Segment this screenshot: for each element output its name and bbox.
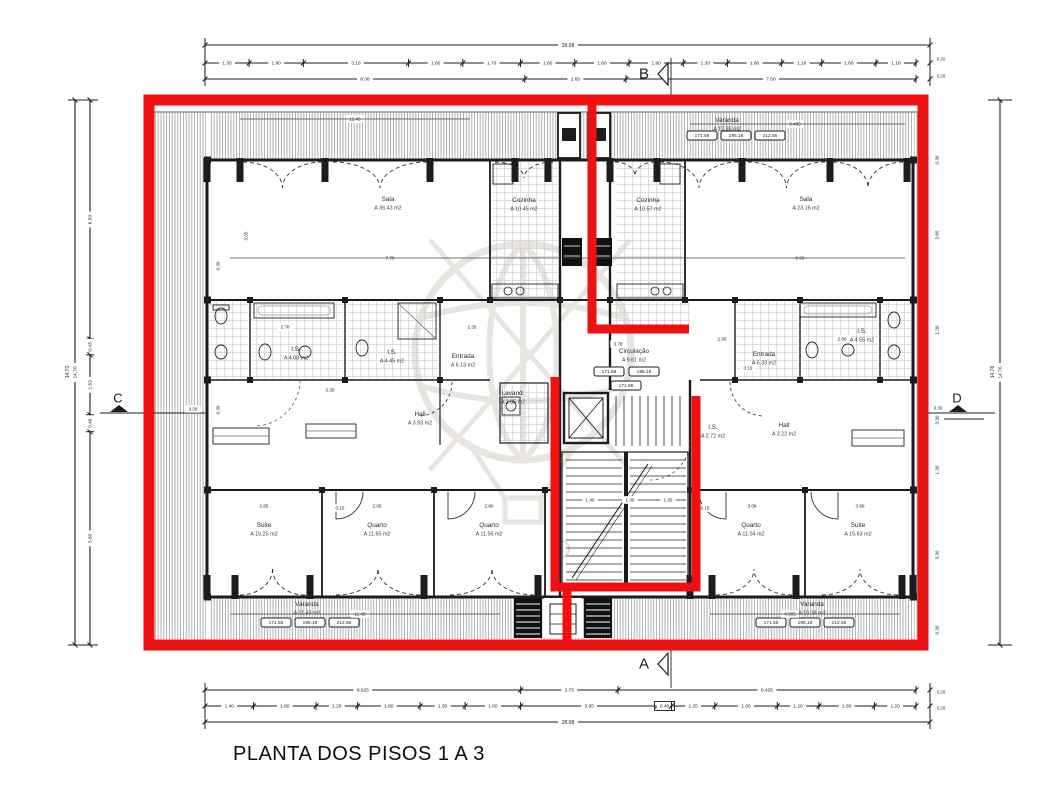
plan-shape — [545, 158, 552, 182]
plan-shape — [607, 158, 614, 182]
plan-shape — [910, 487, 917, 494]
interior-dim: 0.30 — [216, 405, 221, 414]
plan-shape — [910, 377, 917, 384]
room-area: A 10.57 m2 — [634, 206, 661, 212]
plan-shape — [904, 158, 911, 182]
plan-shape — [882, 302, 911, 378]
room-name: I.S. — [708, 424, 718, 431]
room-name: Quarto — [741, 522, 761, 529]
room-name: Varanda — [715, 117, 739, 124]
interior-dim: 0.15 — [701, 506, 710, 511]
plan-shape — [699, 162, 738, 188]
plan-shape — [739, 158, 746, 182]
plan-shape — [730, 382, 764, 416]
room-area: A 10.18 m2 — [798, 610, 825, 616]
room-area: A 9.61 m2 — [622, 357, 646, 363]
interior-dim: 2.35 — [468, 325, 477, 330]
room-area: A 10.45 m2 — [510, 206, 537, 212]
dim-value: 1.70 — [487, 61, 497, 67]
plan-shape — [562, 238, 582, 266]
dim-value: 1.80 — [280, 704, 290, 710]
plan-shape — [732, 297, 738, 303]
interior-dim: 3.30 — [326, 388, 335, 393]
room-area: A 2.72 m2 — [701, 433, 725, 439]
plan-shape — [612, 302, 690, 328]
dim-value: 5.80 — [88, 533, 94, 543]
room-name: Hall — [778, 422, 789, 429]
dim-value: 8.925 — [357, 688, 369, 694]
interior-dim: 1.30 — [626, 498, 635, 503]
wall-dim: 3.30 — [935, 550, 940, 559]
dim-value: 1.60 — [844, 61, 854, 67]
dim-value: 6.50 — [88, 215, 94, 225]
dim-value: 1.20 — [891, 704, 901, 710]
dimension-text: 0.30 — [934, 406, 943, 411]
plan-shape — [535, 575, 542, 599]
level-tag: 212.56 — [337, 620, 352, 626]
plan-shape — [204, 377, 211, 384]
window-arcs — [240, 162, 903, 595]
dimension-text: 0.20 — [937, 74, 946, 79]
plan-shape — [754, 569, 792, 595]
dim-value: 1.60 — [272, 61, 282, 67]
dim-value: 1.30 — [701, 61, 711, 67]
dim-value: 3.95 — [584, 704, 594, 710]
section-marker-C: C — [113, 391, 122, 406]
room-area: A 11.43 m2 — [294, 610, 321, 616]
plan-shape — [802, 487, 808, 493]
plan-shape — [204, 487, 211, 494]
room-area: A 2.35 m2 — [501, 399, 525, 405]
plan-shape — [342, 377, 348, 383]
plan-shape — [716, 569, 754, 595]
room-name: Circulação — [619, 348, 650, 355]
interior-dim: 1.40 — [586, 498, 595, 503]
section-arrow-icon — [110, 405, 128, 412]
plan-shape — [787, 162, 826, 188]
dim-value: 1.60 — [651, 61, 661, 67]
wall-dim: 3.65 — [935, 230, 940, 239]
plan-shape — [822, 569, 860, 595]
plan-shape — [232, 575, 239, 599]
plan-shape — [319, 487, 325, 493]
plan-shape — [562, 128, 576, 141]
interior-dim: 2.85 — [260, 504, 269, 509]
interior-dim: 3.80 — [856, 504, 865, 509]
level-tag: 212.56 — [763, 133, 778, 139]
plan-shape — [797, 297, 803, 303]
interior-dim: 0.30 — [216, 261, 221, 270]
dim-value: 1.60 — [543, 61, 553, 67]
plan-shape — [243, 162, 283, 188]
floor-plan-page: ®SalaA 36.43 m2CozinhaA 10.45 m2CozinhaA… — [0, 0, 1062, 800]
plan-shape — [748, 162, 787, 188]
plan-shape — [797, 377, 803, 383]
plan-shape — [378, 569, 420, 595]
interior-dim: 2.95 — [373, 504, 382, 509]
dim-value: 1.80 — [384, 704, 394, 710]
plan-shape — [431, 487, 437, 493]
section-marker-D: D — [952, 391, 961, 406]
dim-value: 1.30 — [438, 704, 448, 710]
room-area: A 11.56 m2 — [476, 531, 503, 537]
plan-shape — [617, 162, 683, 298]
room-name: Hall — [414, 411, 425, 418]
level-tag: 212.56 — [832, 620, 847, 626]
dim-value: 1.20 — [332, 704, 342, 710]
interior-dim: 2.60 — [838, 337, 847, 342]
section-arrow-icon — [949, 405, 967, 412]
dim-value: 1.60 — [842, 704, 852, 710]
dimension-text: 28.08 — [562, 720, 575, 726]
plan-shape — [273, 569, 306, 595]
plan-shape — [576, 466, 652, 580]
dim-value: 1.60 — [488, 704, 498, 710]
plan-shape — [877, 377, 883, 383]
interior-dim: 3.19 — [744, 366, 753, 371]
room-name: Cozinha — [636, 197, 660, 204]
dim-value: 8.38 — [360, 77, 370, 83]
room-area: A 4.55 m2 — [850, 337, 874, 343]
interior-dim: 3.78 — [614, 342, 623, 347]
room-area: A 4.08 m2 — [284, 355, 308, 361]
dim-value: 1.63 — [88, 380, 94, 390]
room-name: I.S. — [857, 328, 867, 335]
wall-dim: 0.30 — [935, 155, 940, 164]
plan-shape — [240, 569, 273, 595]
plan-shape — [448, 492, 475, 519]
plan-shape — [860, 569, 898, 595]
plan-shape — [204, 157, 211, 164]
plan-shape — [336, 569, 378, 595]
dim-value: 1.18 — [891, 61, 901, 67]
plan-shape — [254, 380, 300, 426]
dim-value: 0.46 — [88, 418, 94, 428]
room-name: Varanda — [295, 601, 319, 608]
plan-shape — [283, 162, 323, 188]
dim-value: 1.60 — [597, 61, 607, 67]
level-tag: 171.56 — [764, 620, 779, 626]
plan-shape — [877, 297, 883, 303]
plan-shape — [307, 575, 314, 599]
dimension-text: 14.70 — [65, 366, 71, 379]
plan-shape — [322, 158, 329, 182]
plan-shape — [492, 162, 558, 298]
plan-shape — [492, 569, 534, 595]
room-name: Lavand. — [502, 390, 525, 397]
room-area: A 4.45 m2 — [380, 358, 404, 364]
room-area: A 3.93 m2 — [408, 420, 432, 426]
room-area: A 15.63 m2 — [844, 531, 871, 537]
room-name: Entrada — [753, 351, 776, 358]
plan-shape — [247, 377, 253, 383]
level-tag: 171.56 — [695, 133, 710, 139]
level-tag: 196.18 — [798, 620, 813, 626]
dimension-text: 0.20 — [937, 706, 946, 711]
plan-shape — [910, 297, 917, 304]
dim-value: 2.75 — [565, 688, 575, 694]
plan-shape — [899, 575, 906, 599]
room-area: A 36.43 m2 — [374, 205, 401, 211]
room-area: A 3.22 m2 — [772, 431, 796, 437]
floor-plan-svg: ®SalaA 36.43 m2CozinhaA 10.45 m2CozinhaA… — [0, 0, 1062, 800]
plan-shape — [827, 158, 834, 182]
room-area: A 6.13 m2 — [451, 362, 475, 368]
plan-shape — [607, 297, 613, 303]
room-name: Suite — [851, 522, 866, 529]
interior-dim: 3.08 — [748, 504, 757, 509]
plan-shape — [450, 569, 492, 595]
dim-value: 1.30 — [222, 61, 232, 67]
section-marker-B: B — [639, 65, 649, 82]
dim-value: 1.18 — [797, 61, 807, 67]
level-tag: 171.56 — [619, 383, 634, 389]
plan-shape — [437, 297, 443, 303]
plan-shape — [421, 575, 428, 599]
dim-value: 14.70 — [73, 366, 79, 378]
drawing-title: PLANTA DOS PISOS 1 A 3 — [233, 743, 485, 766]
wall-dim: 3.30 — [935, 415, 940, 424]
level-tag: 171.56 — [269, 620, 284, 626]
dim-value: 2.65 — [571, 77, 581, 83]
dimension-text: 0.30 — [189, 407, 198, 412]
room-name: Sala — [382, 196, 395, 203]
section-marker-A: A — [639, 655, 649, 672]
level-tag: 196.18 — [303, 620, 318, 626]
interior-dim: 2.80 — [485, 504, 494, 509]
dim-value: 0.40 — [660, 704, 670, 710]
dim-value: 1.60 — [750, 61, 760, 67]
wall-dim: 0.30 — [935, 625, 940, 634]
room-name: Quarto — [479, 522, 499, 529]
plan-shape — [204, 297, 211, 304]
plan-shape — [910, 594, 917, 601]
dim-value: 14.76 — [998, 366, 1004, 378]
plan-shape — [709, 575, 716, 599]
plan-shape — [512, 158, 519, 182]
dimension-text: 0.20 — [937, 690, 946, 695]
level-tag: 171.56 — [602, 369, 617, 375]
left-balcony-hatch — [153, 113, 206, 639]
plan-shape — [833, 162, 868, 188]
dim-value: 1.80 — [741, 704, 751, 710]
dim-value: 0.43 — [88, 342, 94, 352]
wall-dim: 1.30 — [935, 325, 940, 334]
dimension-text: 0.20 — [937, 57, 946, 62]
plan-shape — [437, 377, 443, 383]
plan-shape — [910, 157, 917, 164]
plan-shape — [793, 575, 800, 599]
dim-value: 1.40 — [225, 704, 235, 710]
room-name: Sala — [800, 196, 813, 203]
room-name: Varanda — [800, 601, 824, 608]
interior-dim: 3.05 — [244, 231, 249, 240]
level-tag: 196.18 — [637, 369, 652, 375]
room-area: A 11.65 m2 — [364, 531, 391, 537]
plan-shape — [333, 162, 380, 188]
plan-shape — [542, 487, 548, 493]
interior-dim: 2.95 — [718, 337, 727, 342]
plan-shape — [380, 162, 427, 188]
dim-value: 1.25 — [688, 704, 698, 710]
room-name: I.S. — [387, 349, 397, 356]
plan-shape — [237, 158, 244, 182]
plan-shape — [732, 377, 738, 383]
plan-shape — [811, 492, 838, 519]
level-tag: 196.18 — [729, 133, 744, 139]
plan-shape — [204, 594, 211, 601]
dim-value: 3.10 — [351, 61, 361, 67]
interior-dim: 2.78 — [281, 325, 290, 330]
room-name: Entrada — [452, 353, 475, 360]
dim-value: 8.425 — [761, 688, 773, 694]
dim-value: 7.60 — [766, 77, 776, 83]
wall-dim: 1.30 — [935, 465, 940, 474]
plan-shape — [572, 464, 648, 578]
room-area: A 15.25 m2 — [250, 531, 277, 537]
room-name: I.S. — [291, 346, 301, 353]
plan-shape — [505, 498, 541, 522]
dimension-text: 28.08 — [562, 43, 575, 49]
plan-shape — [868, 162, 903, 188]
plan-shape — [624, 452, 628, 588]
room-area: A 23.16 m2 — [792, 205, 819, 211]
dimension-text: 14.76 — [990, 366, 996, 379]
plan-shape — [427, 158, 434, 182]
room-name: Quarto — [367, 522, 387, 529]
interior-dim: 1.85 — [664, 498, 673, 503]
room-area: A 11.04 m2 — [738, 531, 765, 537]
room-name: Cozinha — [512, 197, 536, 204]
plan-shape — [342, 297, 348, 303]
dim-value: 1.60 — [431, 61, 441, 67]
interior-dim: 0.15 — [336, 506, 345, 511]
room-name: Suite — [257, 522, 272, 529]
section-arrow-icon — [658, 653, 668, 675]
plan-shape — [247, 297, 253, 303]
dim-value: 1.20 — [793, 704, 803, 710]
